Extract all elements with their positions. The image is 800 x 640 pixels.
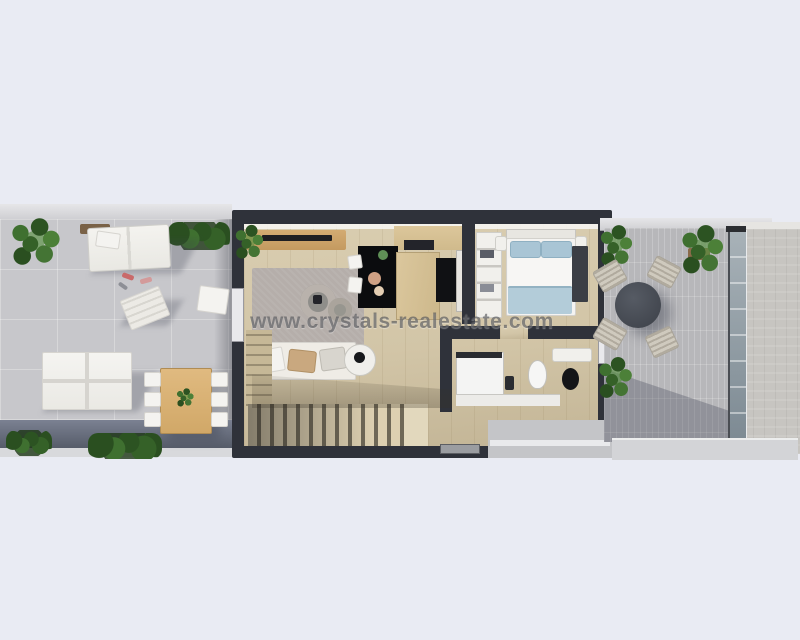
sink-faucet — [505, 376, 514, 390]
table-lamp — [354, 352, 365, 363]
kitchen-hood — [404, 240, 434, 250]
staircase-shadow — [248, 404, 428, 446]
bedroom-dresser — [572, 246, 588, 302]
bar-chair — [347, 276, 363, 293]
dining-chair — [211, 392, 228, 407]
bed-duvet — [508, 258, 572, 286]
wardrobe-clothes — [480, 250, 494, 258]
toilet — [528, 360, 547, 389]
bed-pillow-blue-right — [541, 241, 572, 258]
kitchen-plate — [374, 286, 384, 296]
bed-pillow-blue-left — [510, 241, 541, 258]
sofa-pillow-tan — [287, 349, 317, 374]
hedge-bottom-left — [6, 430, 52, 456]
desk — [552, 348, 592, 362]
nightstand-left — [495, 236, 507, 251]
dining-chair — [144, 412, 161, 427]
bar-chair — [347, 254, 363, 270]
dining-chair — [211, 412, 228, 427]
kitchen-counter-right — [436, 258, 458, 302]
shower — [456, 352, 504, 398]
boundary-concrete-wall — [742, 228, 800, 454]
shower-glass-edge — [456, 352, 502, 358]
kitchen-bowl — [368, 272, 381, 285]
wall-kitchen-bedroom — [462, 224, 475, 324]
coffee-table-decor — [313, 295, 322, 304]
right-terrace-walkway — [612, 438, 798, 460]
watermark-text: www.crystals-realestate.com — [2, 310, 800, 334]
daybed-pillow — [95, 230, 121, 249]
bathroom-vanity — [456, 394, 560, 406]
dining-chair — [211, 372, 228, 387]
wardrobe-clothes — [480, 284, 494, 292]
tv-on-sideboard — [262, 235, 332, 241]
porch-step-edge — [490, 440, 610, 446]
concrete-wall-top-edge — [740, 222, 800, 229]
dining-chair — [144, 392, 161, 407]
kitchen-decor-green — [378, 250, 388, 260]
stair-landing — [404, 404, 428, 446]
entrance-porch — [488, 420, 612, 458]
railing-top-cap — [726, 226, 746, 232]
dining-chair — [144, 372, 161, 387]
glass-railing — [728, 230, 747, 442]
office-chair — [562, 368, 579, 390]
floorplan-render: www.crystals-realestate.com — [0, 0, 800, 640]
outdoor-sectional-sofa — [42, 352, 132, 410]
hedge-bottom-center — [88, 433, 162, 459]
entrance-doormat — [440, 444, 480, 454]
